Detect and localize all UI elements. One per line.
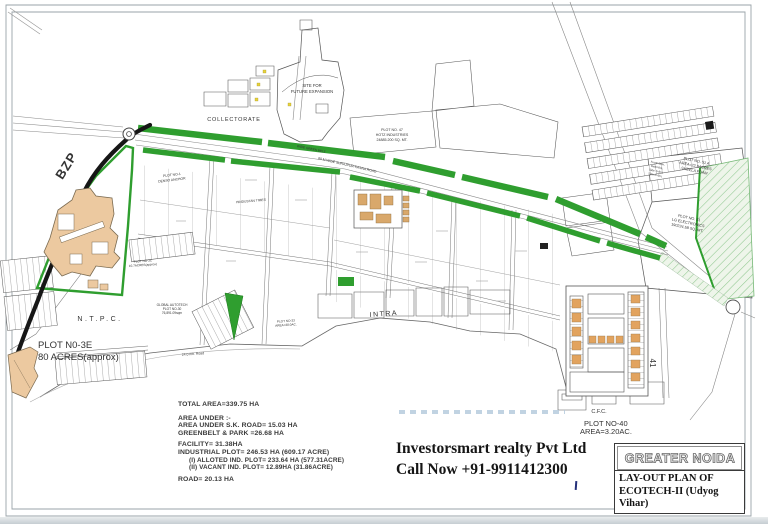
advertiser-contact: Investorsmart realty Pvt Ltd Call Now +9… [396, 438, 586, 480]
label-collectorate: COLLECTORATE [207, 117, 260, 123]
stat-line: ROAD= 20.13 HA [178, 476, 418, 484]
advertiser-name: Investorsmart realty Pvt Ltd [396, 438, 586, 459]
label-plot47-3: 24885.200 SQ. MT. [377, 138, 408, 142]
label-plot47-1: PLOT NO. 47 [381, 128, 403, 132]
green-small-plot [338, 277, 354, 286]
title-block-region-cell: GREATER NOIDA [615, 444, 744, 471]
region-name-svg: GREATER NOIDA [619, 449, 741, 467]
label-site-future-2: FUTURE EXPANSION [291, 89, 333, 94]
advertiser-phone: Call Now +91-9911412300 [396, 459, 586, 480]
roundabout-west [123, 128, 135, 140]
title-block: GREATER NOIDA LAY-OUT PLAN OF ECOTECH-II… [614, 443, 745, 514]
label-site-future-1: SITE FOR [302, 83, 321, 88]
plan-title: LAY-OUT PLAN OF ECOTECH-II (Udyog Vihar) [615, 471, 744, 513]
stat-line: AREA UNDER S.K. ROAD= 15.03 HA [178, 422, 418, 430]
label-ntpc: N.T.P.C. [77, 316, 122, 323]
bottom-right-block [566, 286, 648, 396]
erased-watermark [399, 410, 565, 414]
region-name-box: GREATER NOIDA [617, 446, 742, 470]
label-plot47-2: HOTZ INDUSTRIES [376, 133, 409, 137]
stat-line: FACILITY= 31.38HA [178, 441, 418, 449]
area-statistics: TOTAL AREA=339.75 HA AREA UNDER :- AREA … [178, 401, 418, 483]
label-plot3e-2: 80 ACRES(approx) [38, 352, 119, 363]
stat-line: GREENBELT & PARK =26.68 HA [178, 430, 418, 438]
stat-line: (II) VACANT IND. PLOT= 12.89HA (31.86ACR… [178, 464, 418, 472]
label-plot40-2: AREA=3.20AC. [580, 427, 632, 436]
layout-plan-page: BZP COLLECTORATE SITE FOR FUTURE EXPANSI… [0, 0, 768, 524]
filled-plot [705, 121, 714, 130]
stat-line: TOTAL AREA=339.75 HA [178, 401, 418, 409]
stat-line: AREA UNDER :- [178, 415, 418, 423]
label-global-autotech-3: 76,891.09sqm [162, 311, 183, 315]
filled-plot-2 [540, 243, 548, 249]
page-bottom-edge [0, 517, 768, 524]
label-plot3e-1: PLOT N0-3E [38, 340, 92, 351]
stat-line: (I) ALLOTED IND. PLOT= 233.64 HA (577.31… [178, 457, 418, 465]
region-name-text: GREATER NOIDA [624, 452, 734, 466]
label-cfc: C.F.C. [591, 409, 607, 415]
label-road-41: 41 [648, 359, 657, 368]
stat-line: INDUSTRIAL PLOT= 246.53 HA (609.17 ACRE) [178, 449, 418, 457]
roundabout-east [726, 300, 740, 314]
